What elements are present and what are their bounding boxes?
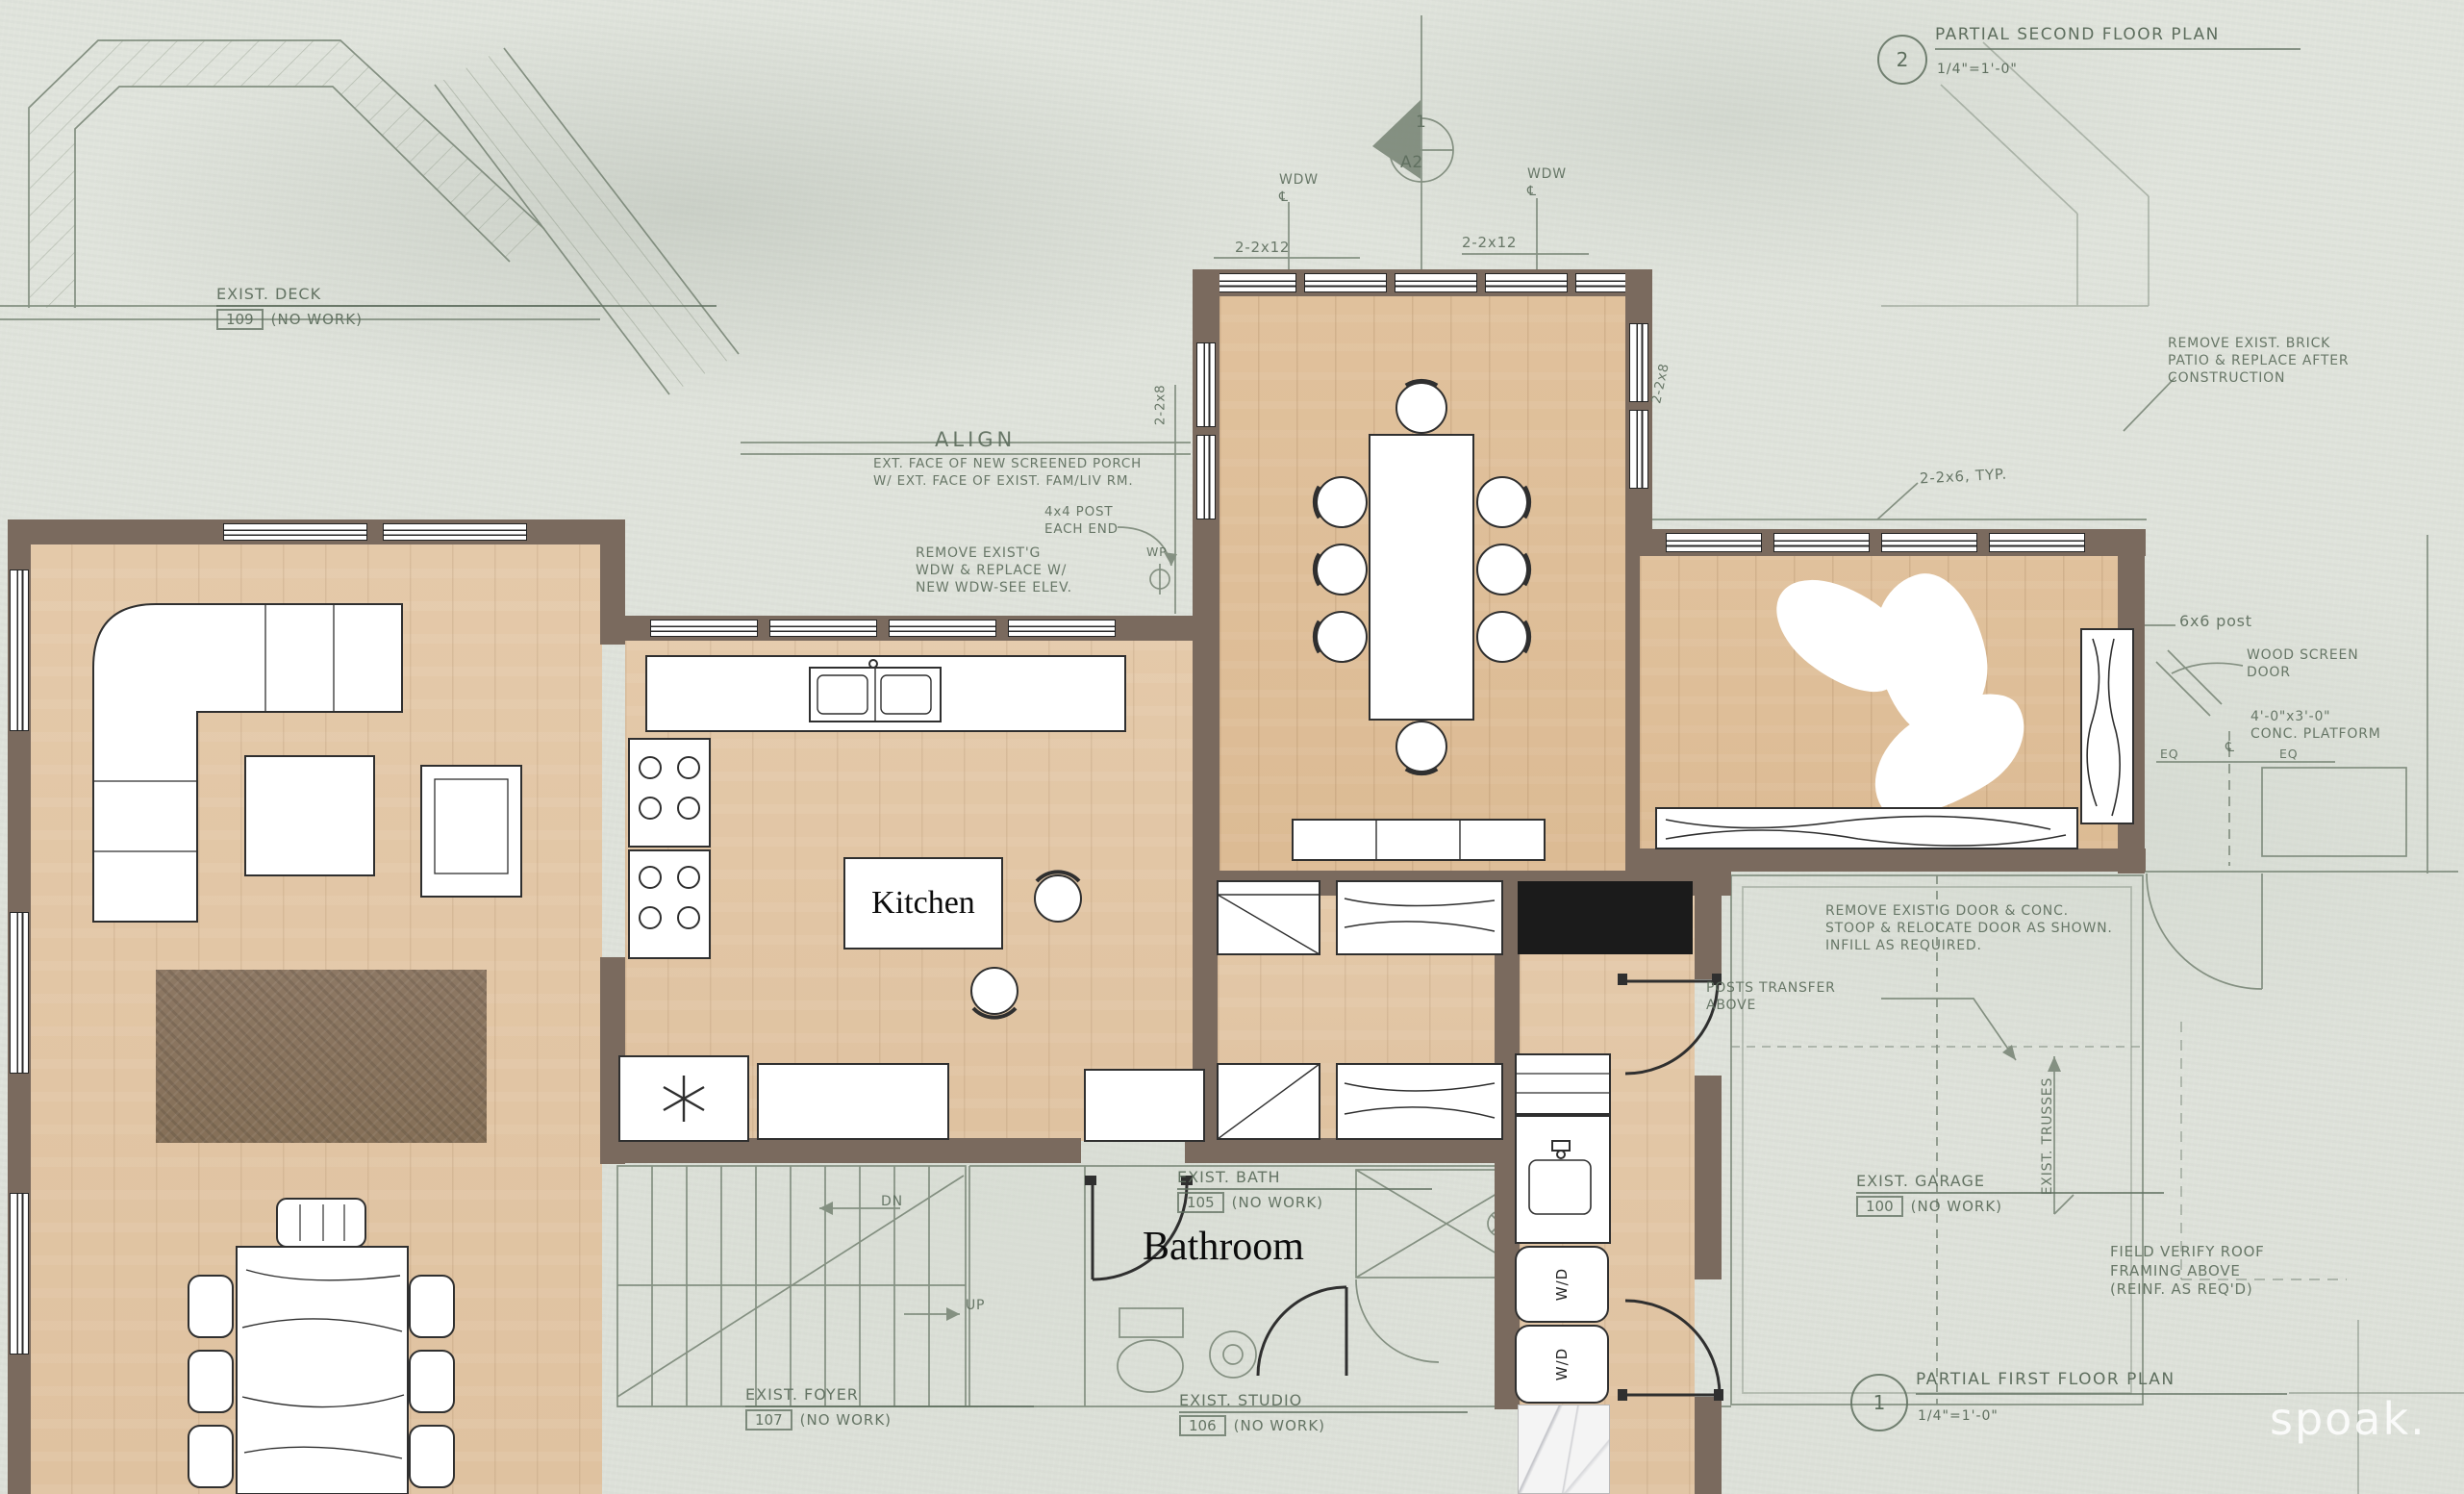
pencil-annotation: 2-2x12 [1235, 239, 1290, 258]
porch-dining-table [1370, 435, 1473, 720]
pencil-annotation: WOOD SCREEN DOOR [2247, 646, 2358, 681]
dresser [1218, 1064, 1320, 1139]
washer-dryer-label: W/D [1516, 1326, 1608, 1403]
pencil-annotation: 6x6 post [2179, 612, 2252, 632]
pencil-annotation: A2 [1400, 152, 1423, 173]
pencil-annotation: FIELD VERIFY ROOF FRAMING ABOVE (REINF. … [2110, 1243, 2265, 1300]
room-tag-name: EXIST. DECK [216, 285, 717, 307]
range-stove [629, 739, 710, 958]
room-note: (NO WORK) [271, 311, 363, 328]
wood-dresser [1337, 881, 1502, 954]
second-floor-title: PARTIAL SECOND FLOOR PLAN [1935, 25, 2301, 50]
room-note: (NO WORK) [1234, 1417, 1325, 1434]
room-tag-row: 107(NO WORK) [745, 1409, 1034, 1431]
kitchen-stool [1035, 872, 1081, 922]
title-number: 1 [1873, 1391, 1886, 1414]
room-tag: EXIST. BATH105(NO WORK) [1177, 1168, 1432, 1213]
furniture-layer [0, 0, 2464, 1494]
pencil-annotation: UP [966, 1297, 985, 1314]
pencil-annotation: 4'-0"x3'-0" CONC. PLATFORM [2250, 708, 2381, 743]
room-note: (NO WORK) [1911, 1198, 2002, 1215]
room-tag: EXIST. DECK109(NO WORK) [216, 285, 717, 330]
pencil-annotation: REMOVE EXIST'G WDW & REPLACE W/ NEW WDW-… [916, 544, 1072, 597]
second-floor-scale: 1/4"=1'-0" [1937, 62, 2018, 77]
floor-plan-canvas: ALIGNEXT. FACE OF NEW SCREENED PORCH W/ … [0, 0, 2464, 1494]
deck-bench-bottom [1656, 808, 2077, 848]
first-floor-title: PARTIAL FIRST FLOOR PLAN [1916, 1370, 2287, 1395]
pencil-annotation: WP [1146, 544, 1168, 560]
pencil-annotation: 1 [1416, 112, 1427, 133]
pencil-annotation: ℄ [2225, 739, 2235, 756]
pencil-annotation: 4x4 POST EACH END [1044, 504, 1119, 538]
room-tag-row: 100(NO WORK) [1856, 1196, 2164, 1217]
pencil-annotation: EQ [2279, 747, 2298, 762]
room-tag: EXIST. GARAGE100(NO WORK) [1856, 1172, 2164, 1217]
pencil-annotation: EXT. FACE OF NEW SCREENED PORCH W/ EXT. … [873, 456, 1142, 490]
room-tag: EXIST. STUDIO106(NO WORK) [1179, 1391, 1468, 1436]
dresser [1218, 881, 1320, 954]
room-tag-name: EXIST. BATH [1177, 1168, 1432, 1190]
pencil-annotation: WDW ℄ [1279, 171, 1319, 206]
kitchen-label: Kitchen [844, 858, 1002, 949]
freezer [619, 1056, 748, 1141]
room-number: 105 [1177, 1192, 1224, 1213]
pencil-annotation: EQ [2160, 747, 2178, 762]
room-tag-name: EXIST. STUDIO [1179, 1391, 1468, 1413]
pencil-annotation: DN [881, 1193, 903, 1210]
spoak-watermark: spoak. [2270, 1393, 2452, 1445]
kitchen-counter-sink [646, 656, 1125, 731]
room-tag-row: 106(NO WORK) [1179, 1415, 1468, 1436]
washer-dryer-label: W/D [1516, 1247, 1608, 1322]
second-floor-title-bubble: 2 [1877, 35, 1927, 85]
armchair [421, 766, 521, 897]
title-number: 2 [1897, 48, 1909, 71]
room-tag-row: 109(NO WORK) [216, 309, 717, 330]
room-number: 107 [745, 1409, 792, 1431]
pencil-annotation: POSTS TRANSFER ABOVE [1706, 979, 1836, 1014]
room-number: 106 [1179, 1415, 1226, 1436]
bathroom-label: Bathroom [1143, 1224, 1304, 1270]
room-note: (NO WORK) [800, 1411, 892, 1429]
room-tag: EXIST. FOYER107(NO WORK) [745, 1385, 1034, 1431]
wd-label-text: W/D [1553, 1348, 1571, 1380]
pencil-annotation: 2-2x12 [1462, 234, 1517, 253]
pencil-annotation: 2-2x8 [1153, 384, 1170, 425]
kitchen-stool [971, 968, 1018, 1018]
pencil-annotation: ALIGN [935, 427, 1016, 453]
first-floor-scale: 1/4"=1'-0" [1918, 1408, 1999, 1424]
wd-label-text: W/D [1553, 1268, 1571, 1301]
pencil-annotation: WDW ℄ [1527, 165, 1567, 200]
pencil-annotation: REMOVE EXIST'G DOOR & CONC. STOOP & RELO… [1825, 902, 2113, 955]
first-floor-title-bubble: 1 [1850, 1374, 1908, 1431]
room-tag-name: EXIST. GARAGE [1856, 1172, 2164, 1194]
pencil-annotation: REMOVE EXIST. BRICK PATIO & REPLACE AFTE… [2168, 335, 2349, 388]
room-number: 100 [1856, 1196, 1903, 1217]
room-tag-name: EXIST. FOYER [745, 1385, 1034, 1407]
laundry-sink [1516, 1116, 1610, 1243]
deck-bench-right [2081, 629, 2133, 823]
room-number: 109 [216, 309, 264, 330]
dining-table-left [237, 1247, 408, 1494]
room-tag-row: 105(NO WORK) [1177, 1192, 1432, 1213]
laundry-cabinet [1516, 1054, 1610, 1114]
wood-dresser [1337, 1064, 1502, 1139]
porch-credenza [1293, 820, 1545, 860]
kitchen-counter-2 [758, 1064, 948, 1139]
kitchen-cabinet [1085, 1070, 1204, 1141]
coffee-table [245, 756, 374, 875]
room-note: (NO WORK) [1232, 1194, 1323, 1211]
